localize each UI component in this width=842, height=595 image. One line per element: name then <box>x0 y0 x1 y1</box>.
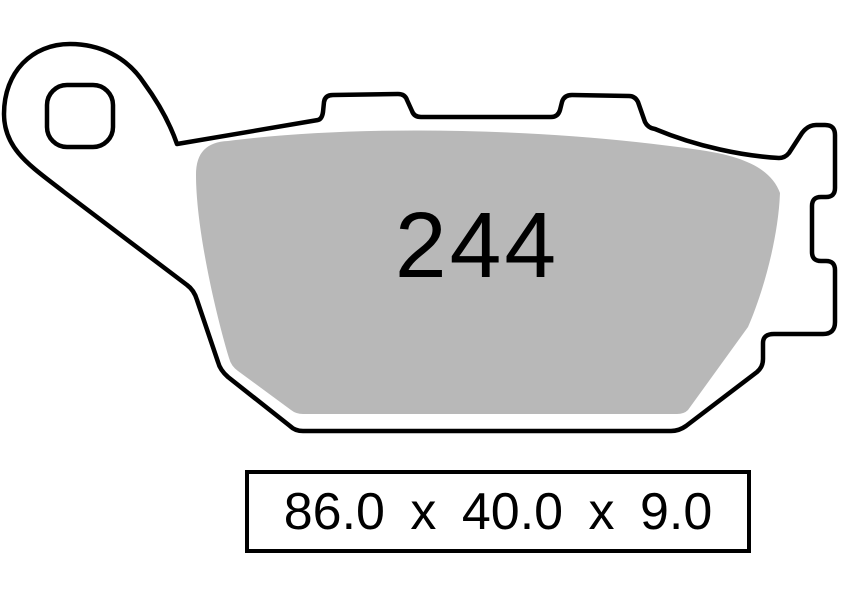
catalog-drawing-page: 244 86.0 x 40.0 x 9.0 <box>0 0 842 595</box>
part-number-label: 244 <box>382 196 572 294</box>
dimensions-box: 86.0 x 40.0 x 9.0 <box>245 470 751 553</box>
mounting-hole <box>47 85 113 147</box>
dimensions-text: 86.0 x 40.0 x 9.0 <box>284 486 713 538</box>
